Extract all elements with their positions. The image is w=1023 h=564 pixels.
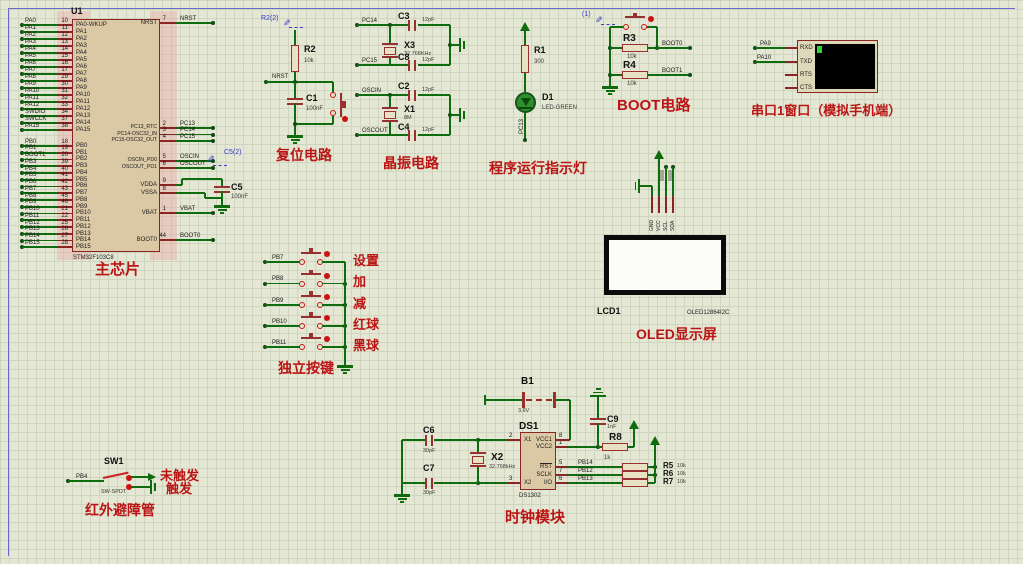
- pin-number: 18: [44, 139, 68, 145]
- pin-stub: [57, 129, 72, 131]
- component-ref: R3: [623, 34, 636, 44]
- net-label: PB4: [76, 474, 87, 480]
- terminal-screen: [815, 44, 875, 89]
- wire: [265, 261, 300, 263]
- net-label: PA4: [25, 46, 36, 52]
- component-value: LED-GREEN: [542, 105, 577, 111]
- pin-name: VCC1: [520, 437, 552, 443]
- component-value: 12pF: [422, 88, 435, 94]
- component-value: 3.6V: [518, 409, 529, 415]
- wire: [478, 439, 508, 441]
- net-label: PA8: [25, 74, 36, 80]
- chip-ref: U1: [71, 7, 83, 16]
- net-label: PB13: [578, 476, 593, 482]
- pin-stub: [672, 196, 674, 213]
- junction-dot: [211, 211, 215, 215]
- pin-name: PC15-OSC32_OUT: [95, 138, 157, 143]
- component-ref: R1: [534, 46, 546, 55]
- wire: [131, 476, 148, 478]
- component-ref: X1: [404, 105, 415, 114]
- wire: [568, 474, 622, 476]
- net-label: PA11: [25, 95, 39, 101]
- resistor-R4: [622, 71, 648, 79]
- wire: [401, 440, 403, 494]
- caption-serial: 串口1窗口（模拟手机端）: [751, 104, 901, 117]
- capacitor-plate: [414, 90, 416, 101]
- component-ref: C5: [231, 183, 243, 192]
- caption-led: 程序运行指示灯: [489, 161, 587, 175]
- component-part-number: OLED12864I2C: [687, 310, 729, 316]
- wire: [344, 262, 346, 365]
- pin-number: 21: [44, 206, 68, 212]
- push-button-actuator[interactable]: [301, 316, 321, 318]
- junction-dot: [523, 138, 527, 142]
- wire: [389, 25, 391, 43]
- key-function-label: 加: [353, 275, 366, 288]
- led-triangle-icon: [521, 98, 531, 106]
- power-arrow-icon: [520, 22, 530, 31]
- capacitor-plate: [425, 478, 427, 489]
- capacitor-plate: [382, 107, 398, 109]
- sim-button-red-dot[interactable]: [324, 315, 330, 321]
- wire: [656, 27, 658, 48]
- wire: [648, 47, 690, 49]
- push-button-actuator[interactable]: [309, 291, 313, 295]
- key-function-label: 黑球: [353, 339, 379, 352]
- wire: [640, 185, 652, 187]
- pin-name: PA3: [76, 43, 87, 49]
- component-value: 100nF: [231, 194, 248, 200]
- pin-name: PA10: [76, 92, 90, 98]
- wire: [610, 47, 622, 49]
- wire: [389, 122, 391, 135]
- junction-dot: [688, 46, 692, 50]
- pin-number: 26: [44, 226, 68, 232]
- pin-name: VCC2: [520, 444, 552, 450]
- pin-name: PB9: [76, 204, 87, 210]
- wire: [568, 446, 598, 448]
- net-label: PB0: [25, 139, 36, 145]
- wire: [418, 94, 450, 96]
- component-value: 10k: [677, 464, 686, 470]
- edit-pencil-icon: ✎: [593, 16, 602, 24]
- wire: [755, 61, 785, 63]
- chip-part-number: STM32F103C8: [73, 255, 114, 261]
- wire: [389, 95, 391, 107]
- ground-symbol: [293, 142, 297, 144]
- pin-number: 27: [44, 233, 68, 239]
- sim-button-red-dot[interactable]: [324, 273, 330, 279]
- pin-number: 12: [44, 32, 68, 38]
- wire: [357, 24, 409, 26]
- pin-name: NRST: [98, 20, 157, 26]
- pin-name: PB3: [76, 163, 87, 169]
- component-value: 1nF: [607, 425, 616, 431]
- sim-button-red-dot[interactable]: [324, 251, 330, 257]
- wire: [402, 439, 425, 441]
- capacitor-plate: [287, 98, 303, 100]
- caption-boot: BOOT电路: [617, 98, 690, 113]
- wire: [322, 325, 345, 327]
- wire: [418, 134, 450, 136]
- ground-symbol: [463, 111, 465, 119]
- push-button-actuator[interactable]: [309, 312, 313, 316]
- resistor-R1: [521, 45, 529, 73]
- pin-stub: [556, 466, 568, 468]
- pin-number: 28: [44, 240, 68, 246]
- schematic-canvas: 主芯片 复位电路 晶振电路 程序运行指示灯 BOOT电路 串口1窗口（模拟手机端…: [0, 0, 1023, 564]
- pin-name: PB10: [76, 210, 91, 216]
- wire: [418, 64, 450, 66]
- ground-symbol: [220, 212, 224, 214]
- sim-button-red-dot[interactable]: [342, 116, 348, 122]
- ground-symbol: [341, 369, 350, 371]
- wire: [294, 30, 296, 45]
- ground-symbol: [463, 41, 465, 49]
- crystal: [384, 47, 396, 55]
- pin-stub: [785, 61, 797, 63]
- component-value: 10k: [677, 472, 686, 478]
- key-function-label: 红球: [353, 318, 379, 331]
- pin-stub: [785, 47, 797, 49]
- net-label: PA2: [25, 32, 36, 38]
- net-label: PA1: [25, 25, 36, 31]
- pin-name: PA9: [76, 85, 87, 91]
- wire: [175, 212, 213, 214]
- component-ref: R7: [663, 478, 673, 486]
- spdt-switch-lever[interactable]: [103, 472, 129, 479]
- caption-ir-sensor: 红外避障管: [85, 503, 155, 517]
- push-button-actuator[interactable]: [301, 273, 321, 275]
- wire: [477, 467, 479, 483]
- net-label: PA7: [25, 67, 36, 73]
- pin-stub: [556, 482, 568, 484]
- net-label: PB10: [272, 319, 287, 325]
- pin-number: 31: [44, 88, 68, 94]
- contact-dot: [330, 110, 336, 116]
- contact-dot: [299, 259, 305, 265]
- ground-symbol: [214, 205, 230, 208]
- component-value: 10k: [627, 81, 637, 87]
- push-button-actuator[interactable]: [633, 13, 637, 17]
- wire: [175, 22, 213, 24]
- net-label: PB8: [25, 193, 36, 199]
- component-value: 12pF: [422, 128, 435, 134]
- component-ref: SW1: [104, 457, 124, 466]
- ground-symbol: [291, 139, 300, 141]
- net-label: PB7: [272, 255, 283, 261]
- pin-number: 32: [44, 95, 68, 101]
- push-button-actuator[interactable]: [301, 252, 321, 254]
- pin-number: 34: [44, 109, 68, 115]
- pin-name: PB13: [76, 231, 91, 237]
- pin-name: PB14: [76, 237, 91, 243]
- wire: [610, 74, 622, 76]
- component-ref: R8: [609, 433, 622, 443]
- ground-symbol: [150, 480, 152, 494]
- wire: [322, 283, 345, 285]
- net-label: PB12: [25, 220, 40, 226]
- pin-stub: [160, 22, 175, 24]
- component-ref: C7: [423, 464, 435, 473]
- edit-pencil-icon: ✎: [205, 155, 214, 163]
- pin-name: PA2: [76, 36, 87, 42]
- wire: [654, 445, 656, 483]
- ground-symbol: [635, 182, 637, 190]
- terminal-pin-name: RTS: [800, 72, 812, 78]
- wire: [357, 134, 409, 136]
- tiny-net-label: [668, 170, 672, 181]
- pin-number: 19: [44, 145, 68, 151]
- component-value: 300: [534, 59, 544, 65]
- pin-number: 14: [44, 46, 68, 52]
- push-button-actuator[interactable]: [309, 333, 313, 337]
- wire: [357, 94, 409, 96]
- pin-name: RST: [520, 464, 552, 470]
- net-label: PC13: [519, 119, 525, 134]
- pin-name: PB15: [76, 244, 91, 250]
- net-label: PA5: [25, 53, 36, 59]
- pin-name: PB2: [76, 156, 87, 162]
- push-button-actuator[interactable]: [309, 248, 313, 252]
- resistor-R8: [602, 443, 628, 451]
- pin-name: OSCOUT_PD1: [95, 165, 157, 170]
- pin-name: PA4: [76, 50, 87, 56]
- component-ref: X2: [491, 453, 503, 463]
- pin-stub: [556, 439, 570, 441]
- net-label: NRST: [180, 16, 196, 22]
- blue-annotation: R2(2): [261, 15, 279, 22]
- pin-number: 17: [44, 67, 68, 73]
- pin-name: VBAT: [98, 210, 157, 216]
- resistor-R3: [622, 44, 648, 52]
- pin-number: 30: [44, 81, 68, 87]
- edit-pencil-icon: ✎: [281, 19, 290, 27]
- component-ref: R2: [304, 45, 316, 54]
- terminal-pin-name: RXD: [800, 45, 813, 51]
- component-ref: LCD1: [597, 307, 621, 316]
- pin-stub: [785, 74, 797, 76]
- pin-name: PA11: [76, 99, 90, 105]
- wire: [22, 246, 57, 248]
- pin-name: PB0: [76, 143, 87, 149]
- pin-name: PA8: [76, 78, 87, 84]
- wire: [205, 197, 222, 199]
- pin-number: 40: [44, 166, 68, 172]
- wire: [221, 191, 223, 205]
- pin-name: SCLK: [520, 472, 552, 478]
- pin-stub: [57, 246, 72, 248]
- pin-name: PB7: [76, 190, 87, 196]
- component-value: 12pF: [422, 18, 435, 24]
- wire: [182, 178, 222, 180]
- ground-symbol: [218, 209, 227, 211]
- oled-pin-name: SDA: [671, 221, 676, 231]
- junction-dot: [211, 166, 215, 170]
- wire: [648, 74, 690, 76]
- pin-number: 13: [44, 39, 68, 45]
- component-value: 1k: [604, 455, 610, 461]
- component-value: 12pF: [422, 58, 435, 64]
- pin-stub: [508, 439, 520, 441]
- net-label: PB6: [25, 179, 36, 185]
- ground-symbol: [606, 90, 615, 92]
- sim-button-red-dot[interactable]: [648, 16, 654, 22]
- component-value: 30pF: [423, 491, 436, 497]
- component-value: 10k: [677, 480, 686, 486]
- net-label: PC14: [362, 18, 377, 24]
- net-label: VBAT: [180, 206, 195, 212]
- component-ref: C2: [398, 82, 410, 91]
- wire: [175, 192, 205, 194]
- wire: [221, 179, 223, 186]
- junction-dot: [688, 73, 692, 77]
- ground-symbol: [394, 494, 410, 497]
- push-button-actuator[interactable]: [625, 16, 645, 18]
- blue-dashes: [601, 24, 615, 25]
- net-label: PA0: [25, 18, 36, 24]
- blue-annotation: (1): [582, 11, 591, 18]
- component-value: 100nF: [306, 106, 323, 112]
- net-label: OSCIN: [362, 88, 381, 94]
- pin-name: PA14: [76, 120, 90, 126]
- capacitor-plate: [470, 452, 486, 454]
- component-part-number: SW-SPDT: [101, 490, 126, 496]
- net-label: PA12: [25, 102, 39, 108]
- wire: [265, 346, 300, 348]
- net-label: BOOT0: [180, 233, 200, 239]
- pin-name: PB4: [76, 170, 87, 176]
- battery-dashed-line: [526, 399, 552, 401]
- push-button-actuator[interactable]: [301, 295, 321, 297]
- net-label: PB12: [578, 468, 593, 474]
- net-label: PC14: [180, 127, 195, 133]
- wire: [569, 400, 571, 440]
- pin-name: PA7: [76, 71, 87, 77]
- caption-reset-circuit: 复位电路: [276, 148, 332, 162]
- wire: [755, 47, 785, 49]
- contact-dot: [299, 281, 305, 287]
- capacitor-plate: [522, 392, 525, 408]
- resistor-R2: [291, 45, 299, 72]
- net-label: PB14: [578, 460, 593, 466]
- net-label: PB10: [25, 206, 40, 212]
- wire: [181, 179, 183, 185]
- wire: [556, 399, 570, 401]
- ground-symbol: [343, 372, 347, 374]
- component-ref: D1: [542, 93, 554, 102]
- wire: [633, 429, 635, 447]
- net-label: PB3: [25, 159, 36, 165]
- caption-oled: OLED显示屏: [636, 327, 717, 341]
- contact-dot: [623, 24, 629, 30]
- push-button-actuator[interactable]: [309, 270, 313, 274]
- wire: [175, 239, 213, 241]
- ground-symbol: [398, 498, 407, 500]
- net-label: PB14: [25, 233, 40, 239]
- pin-stub: [160, 167, 175, 169]
- pin-number: 25: [44, 220, 68, 226]
- sim-button-red-dot[interactable]: [324, 336, 330, 342]
- oled-pin-name: GND: [650, 220, 655, 231]
- pin-name: BOOT0: [98, 237, 157, 243]
- net-label: PB13: [25, 226, 40, 232]
- wire: [265, 304, 300, 306]
- sim-button-red-dot[interactable]: [324, 294, 330, 300]
- pin-name: VSSA: [98, 190, 157, 196]
- pin-number: 3: [509, 476, 512, 482]
- caption-crystal: 晶振电路: [383, 156, 439, 170]
- net-label: PC15: [362, 58, 377, 64]
- net-label: PB15: [25, 240, 40, 246]
- capacitor-plate: [382, 43, 398, 45]
- resistor-R5: [622, 463, 648, 471]
- net-label: BOOT1: [662, 68, 682, 74]
- pin-number: 7: [559, 468, 562, 474]
- component-ref: C1: [306, 94, 318, 103]
- wire: [175, 167, 213, 169]
- wire: [175, 140, 213, 142]
- pin-stub: [658, 196, 660, 213]
- net-label: PB8: [272, 276, 283, 282]
- ground-symbol: [602, 86, 618, 89]
- sheet-border: [8, 8, 9, 556]
- power-arrow-icon: [654, 150, 664, 159]
- net-label: OSCIN: [180, 154, 199, 160]
- wire: [478, 482, 508, 484]
- capacitor-plate: [414, 60, 416, 71]
- capacitor-plate: [425, 435, 427, 446]
- net-label: PB7: [25, 186, 36, 192]
- sheet-border: [8, 8, 1015, 9]
- pin-number: 22: [44, 213, 68, 219]
- capacitor-plate: [414, 20, 416, 31]
- net-label: PB9: [25, 199, 36, 205]
- junction-dot: [211, 21, 215, 25]
- junction-dot: [211, 139, 215, 143]
- pin-number: 15: [44, 53, 68, 59]
- wire: [568, 482, 622, 484]
- pin-number: 6: [559, 476, 562, 482]
- component-ref: X3: [404, 41, 415, 50]
- wire: [131, 486, 150, 488]
- wire: [22, 129, 57, 131]
- pin-number: 43: [44, 186, 68, 192]
- pin-name: PB11: [76, 217, 90, 223]
- pin-name: PB1: [76, 150, 87, 156]
- component-ref: DS1: [519, 422, 538, 432]
- pin-stub: [665, 196, 667, 213]
- net-label: NRST: [272, 74, 288, 80]
- push-button-actuator[interactable]: [342, 101, 346, 108]
- wire: [486, 399, 522, 401]
- capacitor-plate: [214, 186, 230, 188]
- pin-number: 29: [44, 74, 68, 80]
- capacitor-plate: [414, 130, 416, 141]
- junction-dot: [211, 238, 215, 242]
- wire: [597, 397, 599, 418]
- pin-number: 16: [44, 60, 68, 66]
- component-ref: C3: [398, 12, 410, 21]
- power-arrow-icon: [629, 420, 639, 429]
- wire: [450, 114, 459, 116]
- led-bar: [519, 107, 532, 109]
- push-button-actuator[interactable]: [301, 337, 321, 339]
- tiny-net-label: [660, 170, 664, 181]
- ground-symbol: [608, 93, 612, 95]
- pin-number: 11: [44, 25, 68, 31]
- pin-number: 10: [44, 18, 68, 24]
